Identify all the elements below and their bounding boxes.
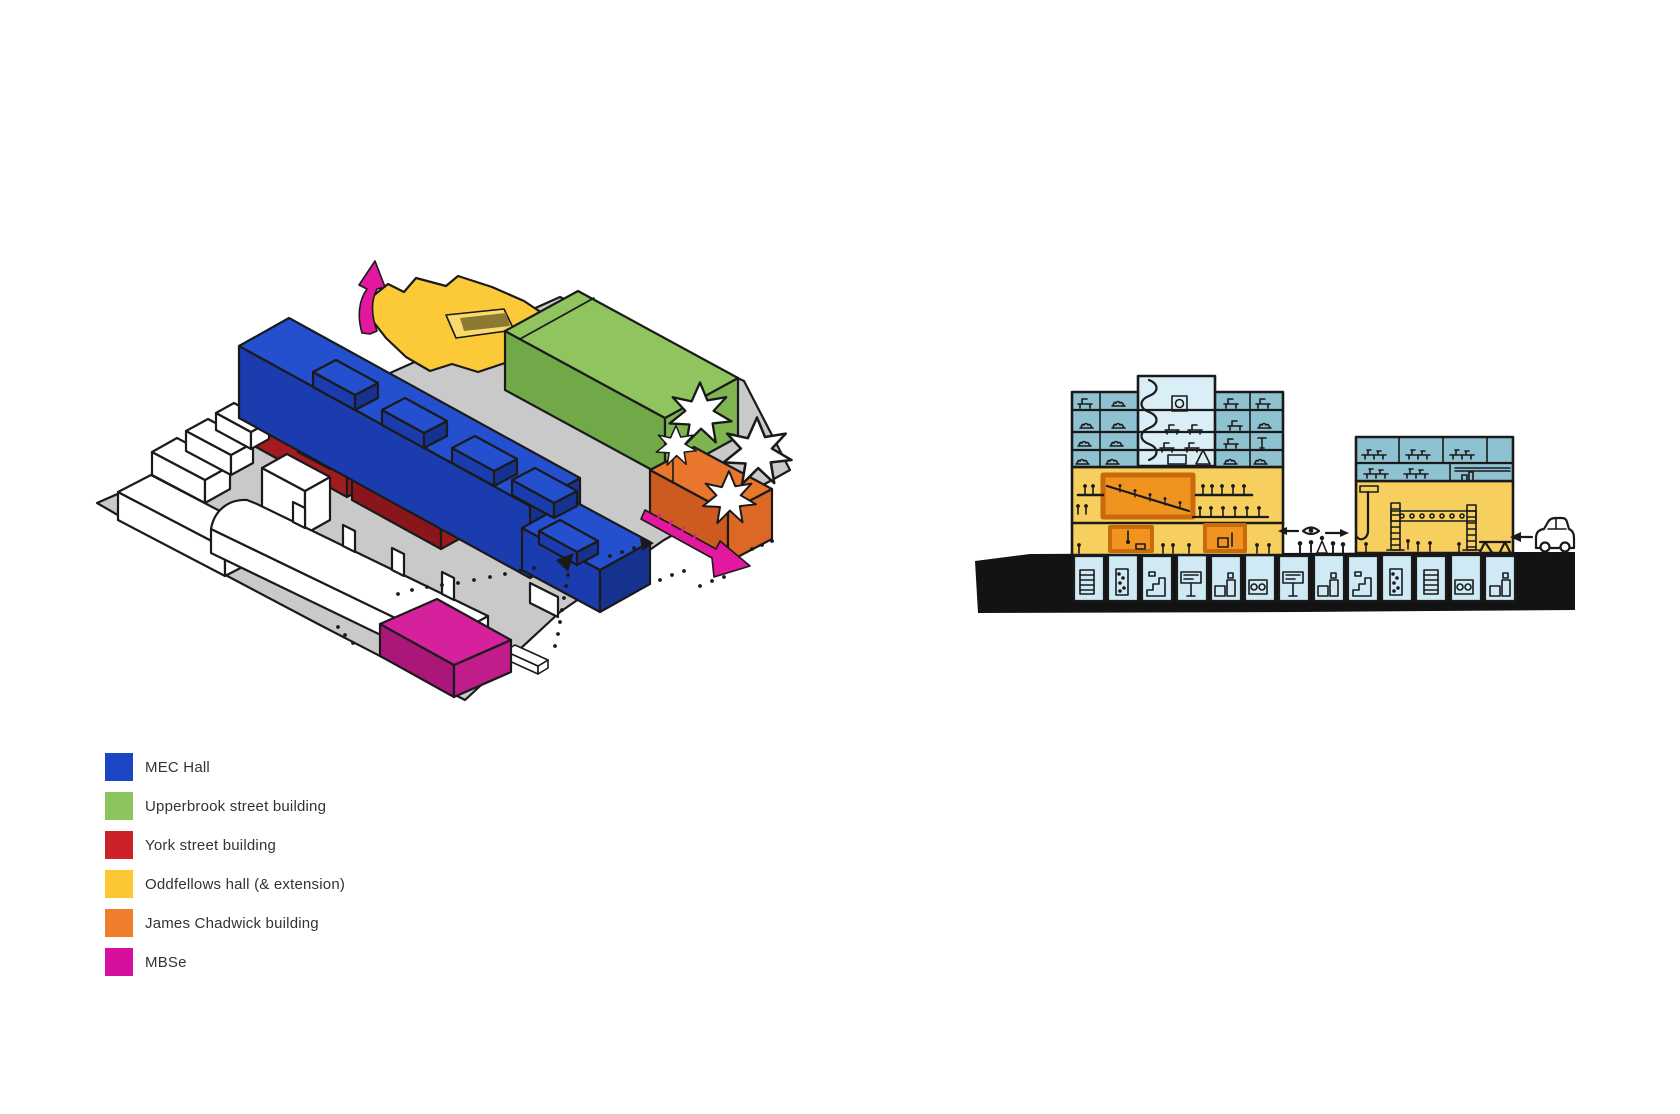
section-auditorium — [1103, 475, 1193, 517]
legend-label: James Chadwick building — [145, 915, 319, 932]
section-left-building — [1072, 376, 1283, 555]
legend-item-oddfellows: Oddfellows hall (& extension) — [105, 870, 345, 898]
section-eye-arrows-icon — [1278, 527, 1349, 537]
diagram-canvas: MEC Hall Upperbrook street building York… — [0, 0, 1680, 1114]
section-car-icon — [1510, 518, 1574, 552]
legend-label: Upperbrook street building — [145, 798, 326, 815]
legend-swatch-oddfellows — [105, 870, 133, 898]
legend-label: York street building — [145, 837, 276, 854]
legend-label: MBSe — [145, 954, 187, 971]
legend-swatch-mec-hall — [105, 753, 133, 781]
legend-swatch-mbse — [105, 948, 133, 976]
legend-label: MEC Hall — [145, 759, 210, 776]
legend-item-york-street: York street building — [105, 831, 345, 859]
legend-item-mbse: MBSe — [105, 948, 345, 976]
site-plan-figure — [97, 261, 792, 700]
section-figure — [975, 376, 1575, 613]
section-right-building — [1356, 437, 1513, 554]
section-street-gap — [1278, 527, 1349, 554]
legend-item-upperbrook: Upperbrook street building — [105, 792, 345, 820]
legend: MEC Hall Upperbrook street building York… — [105, 753, 345, 987]
legend-label: Oddfellows hall (& extension) — [145, 876, 345, 893]
legend-item-mec-hall: MEC Hall — [105, 753, 345, 781]
legend-swatch-york-street — [105, 831, 133, 859]
legend-swatch-upperbrook — [105, 792, 133, 820]
legend-swatch-james-chadwick — [105, 909, 133, 937]
legend-item-james-chadwick: James Chadwick building — [105, 909, 345, 937]
